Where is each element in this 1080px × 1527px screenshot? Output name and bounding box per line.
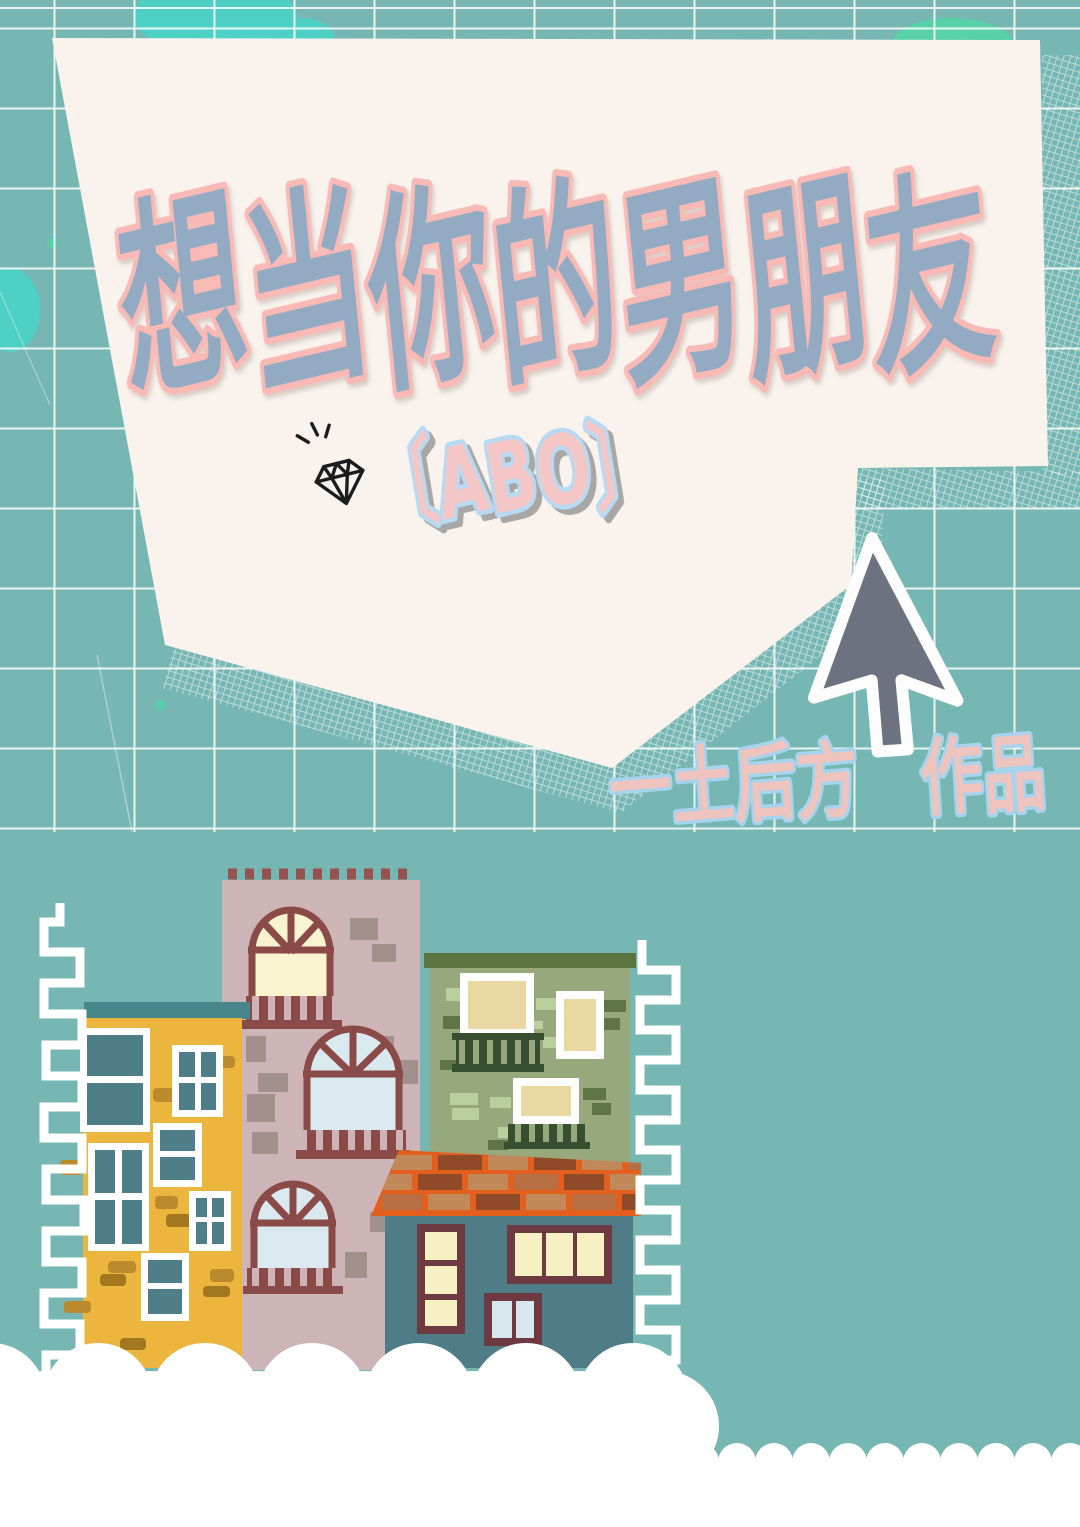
cover-title: 想当你的男朋友 (99, 150, 1007, 434)
cover-scene: 想当你的男朋友 〔ABO〕 一土后方 作品 (0, 0, 1080, 1527)
yellow-window-f (141, 1253, 189, 1321)
green-window-2 (556, 991, 604, 1059)
book-cover: 想当你的男朋友 〔ABO〕 一土后方 作品 (0, 0, 1080, 1527)
green-window-3 (504, 1078, 590, 1149)
teal-house (370, 1150, 658, 1368)
yellow-window-e (189, 1191, 231, 1251)
teal-house-window-tall (417, 1224, 465, 1334)
yellow-window-a (80, 1028, 150, 1132)
green-building-roof-strip (424, 953, 636, 968)
yellow-window-c (153, 1123, 202, 1187)
yellow-window-b (172, 1045, 223, 1117)
pink-arched-window-1 (242, 910, 342, 1029)
author-credit: 一土后方 作品 (606, 724, 1049, 839)
teal-house-window-small (484, 1293, 542, 1346)
teal-house-window-wide (507, 1225, 612, 1284)
pink-arched-window-2 (296, 1029, 410, 1159)
yellow-window-d (88, 1143, 149, 1251)
green-window-1 (452, 973, 544, 1072)
yellow-building-roof-strip (84, 1002, 250, 1019)
yellow-building (60, 1002, 250, 1368)
